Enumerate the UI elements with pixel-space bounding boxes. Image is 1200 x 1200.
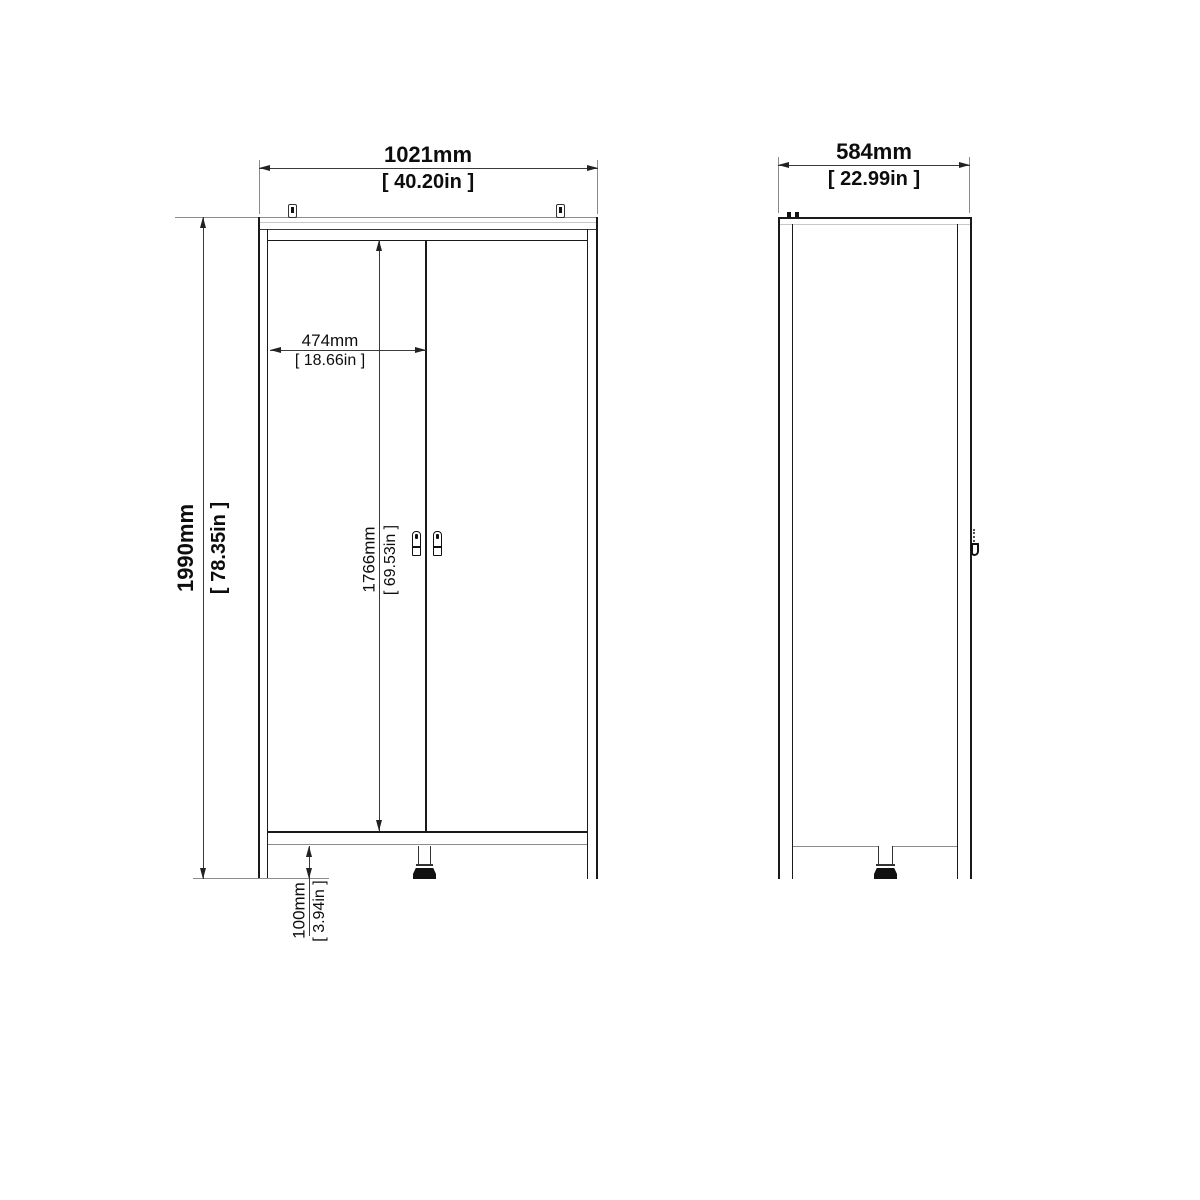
side-back-post-inner-line <box>792 224 793 879</box>
front-top-cap-bottom-line <box>258 229 598 230</box>
arrowhead-right-icon <box>587 165 598 171</box>
dim-overall-height-in: [ 78.35in ] <box>209 468 229 628</box>
wall-bracket-left-icon <box>288 204 297 218</box>
dim-depth-line <box>778 165 970 166</box>
dim-door-width-in: [ 18.66in ] <box>250 353 410 369</box>
front-right-panel-outer-line <box>596 217 598 879</box>
arrowhead-down-icon <box>376 820 382 831</box>
arrowhead-down-icon <box>200 868 206 879</box>
side-top-cap-light-line <box>778 224 972 225</box>
dim-leg-height-line <box>309 846 310 936</box>
dim-depth-in: [ 22.99in ] <box>784 169 964 189</box>
front-left-panel-inner-line <box>267 229 268 879</box>
side-foot-collar-icon <box>876 864 895 866</box>
front-adjustable-foot-icon <box>413 868 436 879</box>
front-foot-collar-icon <box>416 864 433 866</box>
front-door-top-line <box>268 240 587 241</box>
side-front-post-inner-line <box>957 224 958 879</box>
side-foot-stem-icon <box>878 846 893 866</box>
side-wall-bracket-tick-icon <box>787 212 791 217</box>
side-top-line <box>778 217 972 219</box>
dim-overall-height-mm: 1990mm <box>175 468 197 628</box>
front-top-surface-line <box>175 217 598 218</box>
side-adjustable-foot-icon <box>874 868 897 879</box>
dim-overall-height-line <box>203 217 204 879</box>
side-wall-bracket-tick2-icon <box>795 212 799 217</box>
front-door-bottom-line <box>268 831 587 833</box>
side-handle-profile-icon <box>971 543 979 556</box>
dim-door-height-line <box>379 240 380 831</box>
dim-overall-width-in: [ 40.20in ] <box>338 172 518 192</box>
dim-door-width-mm: 474mm <box>250 332 410 349</box>
side-handle-mount-dots-icon <box>973 529 975 542</box>
front-door-split-line <box>425 240 427 831</box>
dim-door-width-line <box>270 350 426 351</box>
front-right-panel-inner-line <box>587 229 588 879</box>
dim-leg-height-mm: 100mm <box>291 857 308 965</box>
wall-bracket-right-icon <box>556 204 565 218</box>
front-bottom-rail-line <box>268 844 587 845</box>
door-handle-right-icon <box>433 531 442 556</box>
dim-overall-width-line <box>259 168 598 169</box>
arrowhead-up-icon <box>376 240 382 251</box>
front-foot-stem-icon <box>418 846 431 866</box>
arrowhead-up-icon <box>306 846 312 857</box>
front-top-cap-light-line <box>258 222 598 223</box>
dim-leg-height-in: [ 3.94in ] <box>312 857 328 965</box>
arrowhead-up-icon <box>200 217 206 228</box>
side-bottom-panel-line <box>793 846 957 847</box>
dim-overall-width-mm: 1021mm <box>338 144 518 166</box>
dimension-drawing-canvas: 1021mm [ 40.20in ] 584mm [ 22.99in ] 199… <box>0 0 1200 1200</box>
front-left-panel-outer-line <box>258 217 260 879</box>
dim-door-height-mm: 1766mm <box>361 485 378 635</box>
arrowhead-right-icon <box>415 347 426 353</box>
dim-depth-mm: 584mm <box>784 141 964 163</box>
dim-door-height-in: [ 69.53in ] <box>383 485 399 635</box>
side-back-post-outer-line <box>778 217 780 879</box>
door-handle-left-icon <box>412 531 421 556</box>
arrowhead-left-icon <box>259 165 270 171</box>
